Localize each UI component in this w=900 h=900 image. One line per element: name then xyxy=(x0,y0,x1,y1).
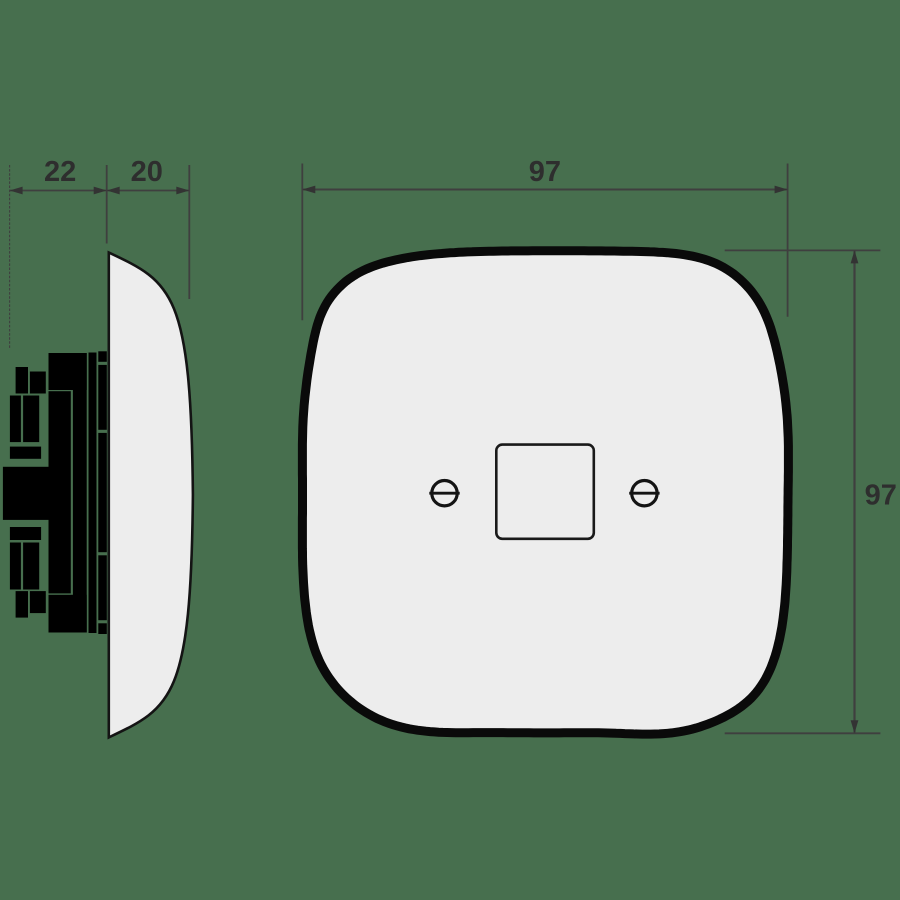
svg-text:97: 97 xyxy=(529,156,561,188)
svg-text:22: 22 xyxy=(44,156,76,188)
svg-text:20: 20 xyxy=(131,156,163,188)
svg-text:97: 97 xyxy=(865,480,897,512)
